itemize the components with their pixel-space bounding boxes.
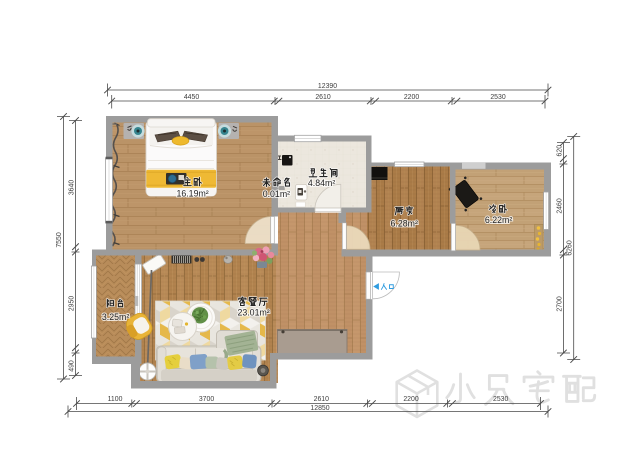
svg-text:2610: 2610 bbox=[315, 94, 330, 101]
svg-text:7550: 7550 bbox=[56, 232, 63, 247]
svg-text:4.84m²: 4.84m² bbox=[308, 178, 335, 188]
svg-text:6.22m²: 6.22m² bbox=[485, 215, 512, 225]
svg-text:0.01m²: 0.01m² bbox=[263, 189, 290, 199]
svg-text:3.25m²: 3.25m² bbox=[102, 312, 129, 322]
svg-text:4450: 4450 bbox=[184, 94, 199, 101]
svg-text:3640: 3640 bbox=[69, 180, 76, 195]
svg-text:12850: 12850 bbox=[310, 405, 329, 412]
svg-text:2610: 2610 bbox=[314, 396, 329, 403]
svg-text:2530: 2530 bbox=[490, 94, 505, 101]
svg-text:2200: 2200 bbox=[403, 396, 418, 403]
svg-text:16.19m²: 16.19m² bbox=[176, 189, 208, 199]
svg-text:2460: 2460 bbox=[557, 198, 564, 213]
svg-text:2200: 2200 bbox=[404, 94, 419, 101]
svg-text:12390: 12390 bbox=[318, 83, 337, 90]
svg-text:6.28m²: 6.28m² bbox=[391, 219, 418, 229]
svg-text:1100: 1100 bbox=[108, 396, 123, 403]
svg-text:2950: 2950 bbox=[69, 296, 76, 311]
svg-text:3700: 3700 bbox=[199, 396, 214, 403]
svg-text:23.01m²: 23.01m² bbox=[237, 308, 269, 318]
svg-text:2530: 2530 bbox=[493, 396, 508, 403]
svg-text:490: 490 bbox=[69, 360, 76, 372]
svg-text:2700: 2700 bbox=[557, 296, 564, 311]
svg-text:620: 620 bbox=[557, 145, 564, 157]
svg-text:6260: 6260 bbox=[567, 240, 574, 255]
